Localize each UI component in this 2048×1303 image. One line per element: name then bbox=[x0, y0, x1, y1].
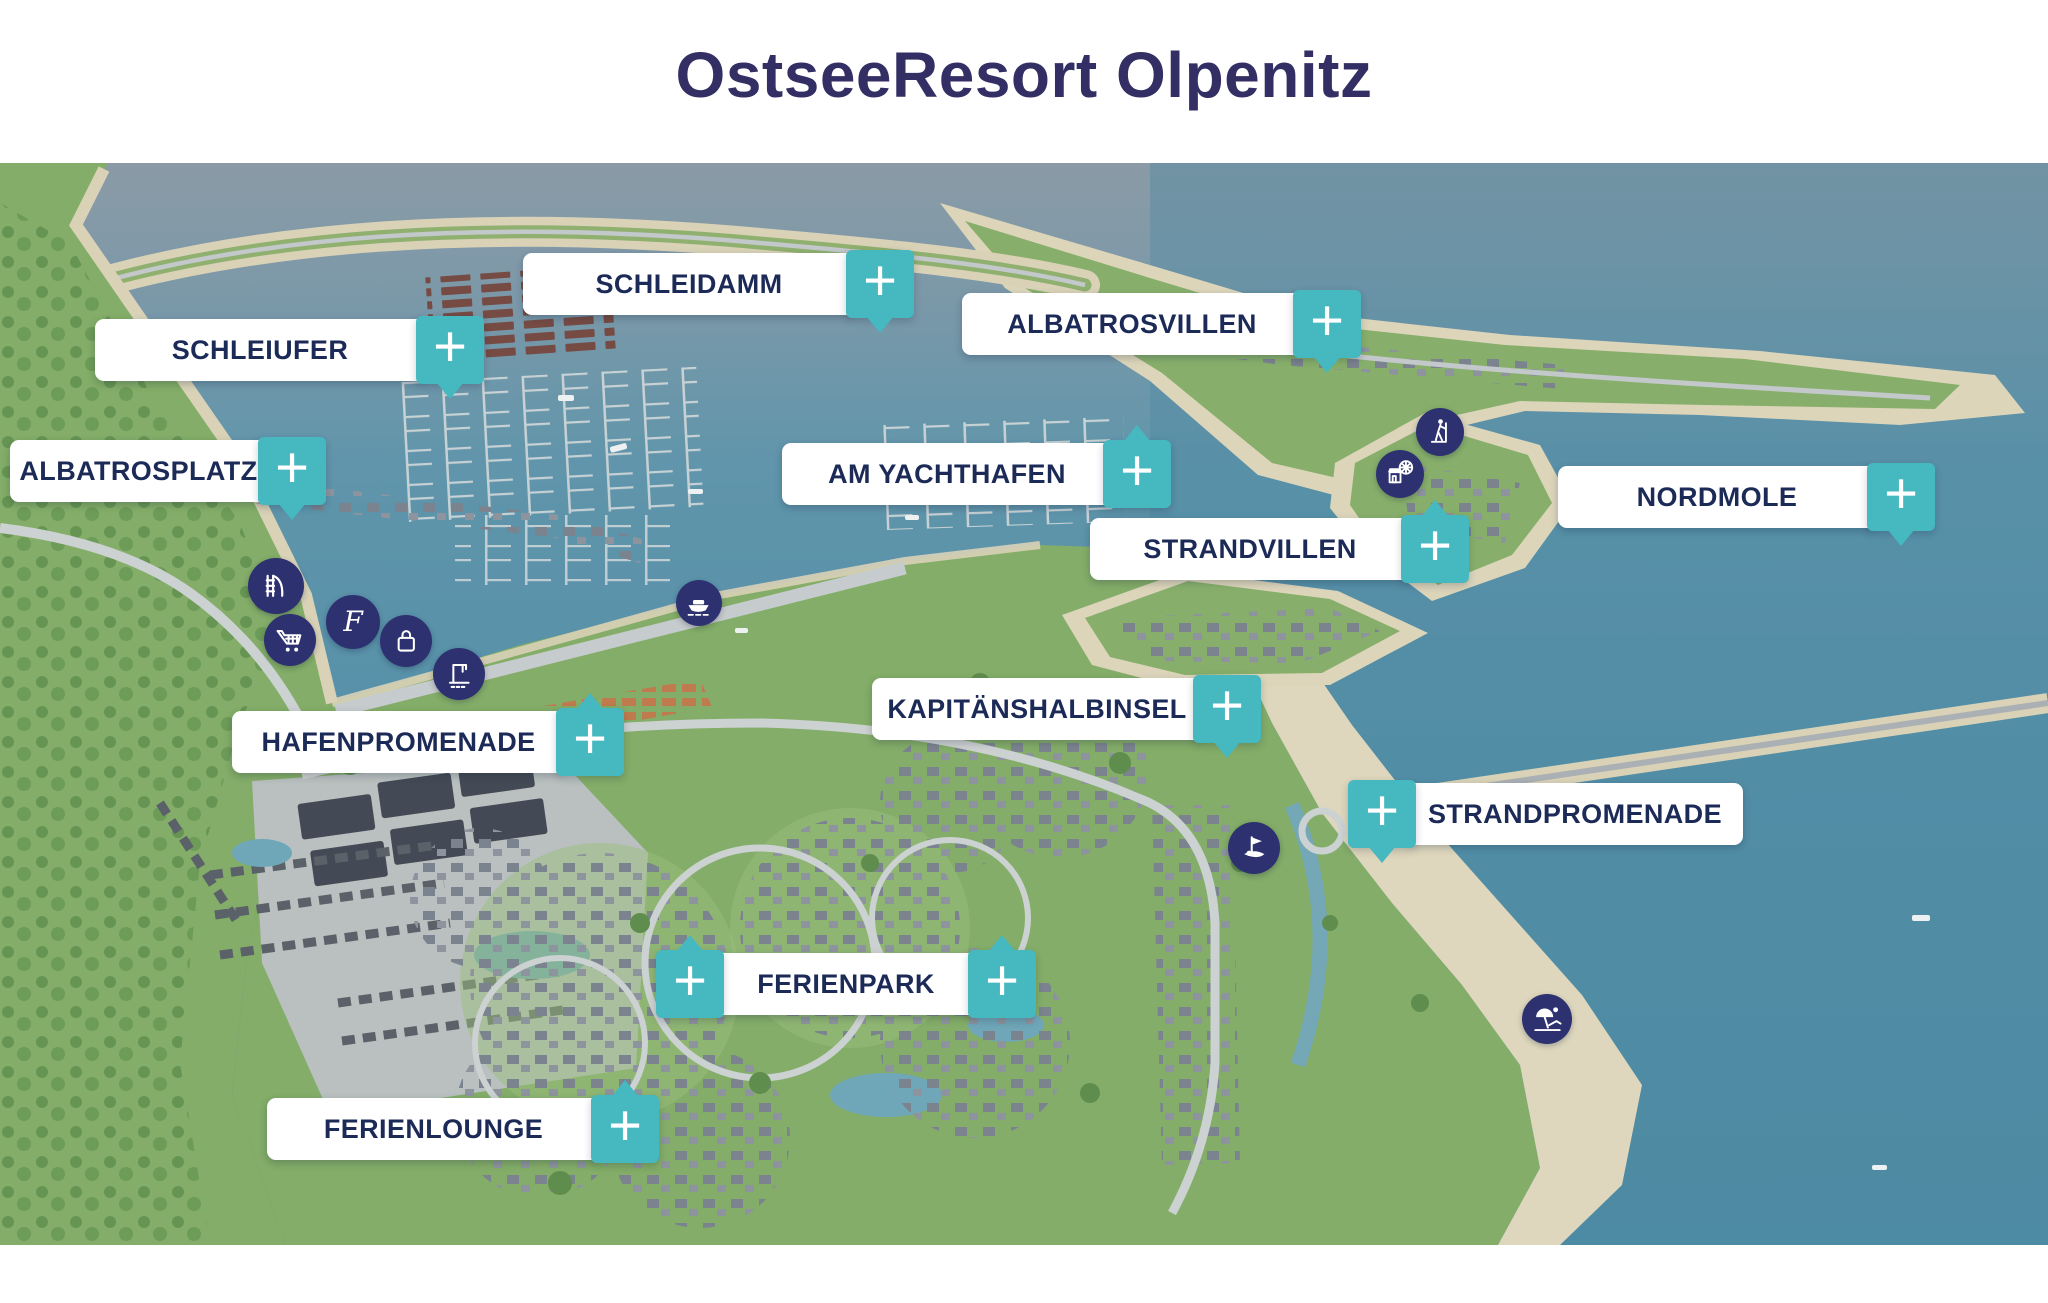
area-label-text: NORDMOLE bbox=[1637, 482, 1798, 513]
area-marker-albatrosplatz: ALBATROSPLATZ + bbox=[10, 437, 326, 505]
area-marker-schleiufer: SCHLEIUFER + bbox=[95, 316, 484, 384]
plus-icon: + bbox=[985, 952, 1019, 1010]
area-plus-button-strandvillen[interactable]: + bbox=[1401, 515, 1469, 583]
f-logo-icon[interactable]: F bbox=[326, 595, 380, 649]
area-marker-strandpromenade: + STRANDPROMENADE bbox=[1348, 780, 1743, 848]
area-plus-button-ferienlounge[interactable]: + bbox=[591, 1095, 659, 1163]
area-label-text: STRANDVILLEN bbox=[1143, 534, 1356, 565]
shopping-bag-icon[interactable] bbox=[380, 615, 432, 667]
golf-icon[interactable] bbox=[1228, 822, 1280, 874]
area-plus-button-schleiufer[interactable]: + bbox=[416, 316, 484, 384]
area-label-albatrosplatz[interactable]: ALBATROSPLATZ bbox=[10, 440, 267, 502]
area-label-am-yachthafen[interactable]: AM YACHTHAFEN bbox=[782, 443, 1112, 505]
area-label-text: ALBATROSVILLEN bbox=[1007, 309, 1257, 340]
plus-icon: + bbox=[1310, 292, 1344, 350]
area-marker-strandvillen: STRANDVILLEN + bbox=[1090, 515, 1469, 583]
waterslide-icon[interactable] bbox=[248, 558, 304, 614]
area-label-text: STRANDPROMENADE bbox=[1428, 799, 1722, 830]
area-label-strandpromenade[interactable]: STRANDPROMENADE bbox=[1407, 783, 1743, 845]
hiking-icon[interactable] bbox=[1416, 408, 1464, 456]
area-plus-button-am-yachthafen[interactable]: + bbox=[1103, 440, 1171, 508]
page-header: OstseeResort Olpenitz bbox=[0, 0, 2048, 163]
area-label-text: ALBATROSPLATZ bbox=[19, 456, 257, 487]
footer-spacer bbox=[0, 1245, 2048, 1303]
area-marker-kapitaenshalbinsel: KAPITÄNSHALBINSEL + bbox=[872, 675, 1261, 743]
plus-icon: + bbox=[573, 710, 607, 768]
area-plus-button-nordmole[interactable]: + bbox=[1867, 463, 1935, 531]
area-label-hafenpromenade[interactable]: HAFENPROMENADE bbox=[232, 711, 565, 773]
area-plus-button-albatrosvillen[interactable]: + bbox=[1293, 290, 1361, 358]
area-label-text: SCHLEIUFER bbox=[172, 335, 349, 366]
area-label-schleiufer[interactable]: SCHLEIUFER bbox=[95, 319, 425, 381]
plus-icon: + bbox=[1365, 782, 1399, 840]
resort-map: F SCHLEIDAMM + SCHLEIUFER + ALBATROSVILL… bbox=[0, 163, 2048, 1245]
leisure-market-icon[interactable] bbox=[1376, 450, 1424, 498]
area-plus-button-ferienpark-left[interactable]: + bbox=[656, 950, 724, 1018]
plus-icon: + bbox=[863, 252, 897, 310]
area-label-text: KAPITÄNSHALBINSEL bbox=[887, 694, 1186, 725]
area-label-nordmole[interactable]: NORDMOLE bbox=[1558, 466, 1876, 528]
area-marker-am-yachthafen: AM YACHTHAFEN + bbox=[782, 440, 1171, 508]
area-marker-ferienpark: + FERIENPARK + bbox=[665, 950, 1027, 1018]
plus-icon: + bbox=[1418, 517, 1452, 575]
area-plus-button-schleidamm[interactable]: + bbox=[846, 250, 914, 318]
area-label-kapitaenshalbinsel[interactable]: KAPITÄNSHALBINSEL bbox=[872, 678, 1202, 740]
area-label-text: FERIENPARK bbox=[757, 969, 935, 1000]
plus-icon: + bbox=[673, 952, 707, 1010]
ferry-icon[interactable] bbox=[676, 580, 722, 626]
beach-icon[interactable] bbox=[1522, 994, 1572, 1044]
plus-icon: + bbox=[1884, 465, 1918, 523]
boat-crane-icon[interactable] bbox=[433, 648, 485, 700]
area-label-ferienpark[interactable]: FERIENPARK bbox=[715, 953, 977, 1015]
area-plus-button-strandpromenade[interactable]: + bbox=[1348, 780, 1416, 848]
area-label-text: SCHLEIDAMM bbox=[596, 269, 783, 300]
area-plus-button-kapitaenshalbinsel[interactable]: + bbox=[1193, 675, 1261, 743]
plus-icon: + bbox=[433, 318, 467, 376]
shopping-cart-icon[interactable] bbox=[264, 614, 316, 666]
page-title: OstseeResort Olpenitz bbox=[676, 38, 1373, 112]
area-plus-button-albatrosplatz[interactable]: + bbox=[258, 437, 326, 505]
area-marker-albatrosvillen: ALBATROSVILLEN + bbox=[962, 290, 1361, 358]
plus-icon: + bbox=[1120, 442, 1154, 500]
area-label-albatrosvillen[interactable]: ALBATROSVILLEN bbox=[962, 293, 1302, 355]
area-label-ferienlounge[interactable]: FERIENLOUNGE bbox=[267, 1098, 600, 1160]
area-label-strandvillen[interactable]: STRANDVILLEN bbox=[1090, 518, 1410, 580]
area-marker-nordmole: NORDMOLE + bbox=[1558, 463, 1935, 531]
area-label-text: AM YACHTHAFEN bbox=[828, 459, 1066, 490]
area-marker-schleidamm: SCHLEIDAMM + bbox=[523, 250, 914, 318]
area-plus-button-ferienpark-right[interactable]: + bbox=[968, 950, 1036, 1018]
area-label-schleidamm[interactable]: SCHLEIDAMM bbox=[523, 253, 855, 315]
plus-icon: + bbox=[608, 1097, 642, 1155]
plus-icon: + bbox=[275, 439, 309, 497]
area-marker-hafenpromenade: HAFENPROMENADE + bbox=[232, 708, 624, 776]
area-marker-ferienlounge: FERIENLOUNGE + bbox=[267, 1095, 659, 1163]
area-label-text: FERIENLOUNGE bbox=[324, 1114, 543, 1145]
f-logo-glyph: F bbox=[342, 605, 364, 638]
plus-icon: + bbox=[1210, 677, 1244, 735]
area-plus-button-hafenpromenade[interactable]: + bbox=[556, 708, 624, 776]
area-label-text: HAFENPROMENADE bbox=[261, 727, 535, 758]
